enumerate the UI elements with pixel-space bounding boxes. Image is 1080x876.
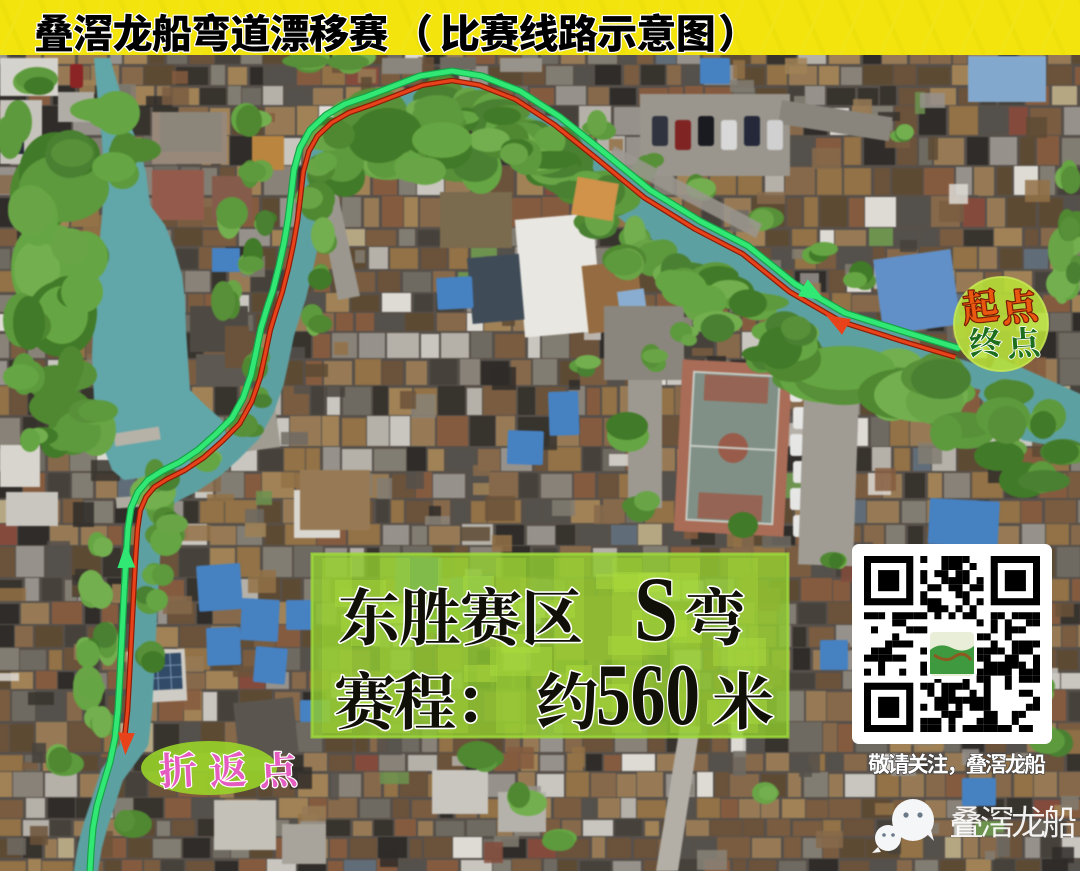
svg-text:S: S [634,558,678,660]
svg-text:560: 560 [596,647,700,744]
